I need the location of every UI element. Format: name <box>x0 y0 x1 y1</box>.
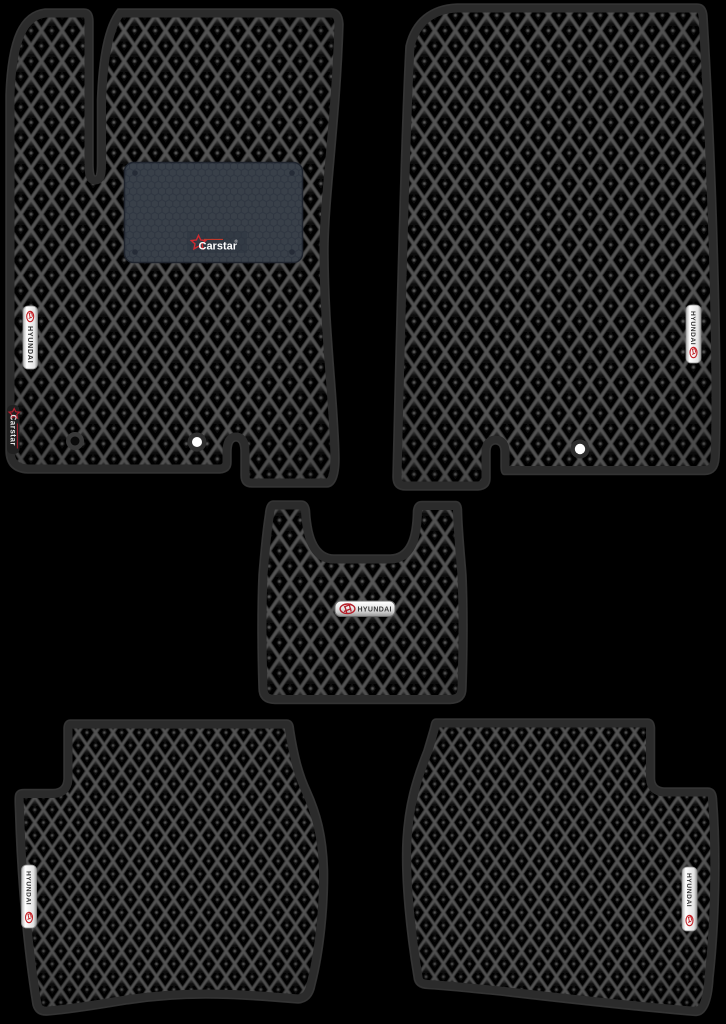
svg-text:HYUNDAI: HYUNDAI <box>689 311 696 345</box>
svg-text:HYUNDAI: HYUNDAI <box>358 606 392 613</box>
svg-text:Carstar: Carstar <box>8 415 17 447</box>
svg-text:HYUNDAI: HYUNDAI <box>26 326 33 364</box>
svg-text:HYUNDAI: HYUNDAI <box>25 871 32 905</box>
svg-text:HYUNDAI: HYUNDAI <box>685 873 692 907</box>
svg-text:Carstar: Carstar <box>199 240 238 252</box>
